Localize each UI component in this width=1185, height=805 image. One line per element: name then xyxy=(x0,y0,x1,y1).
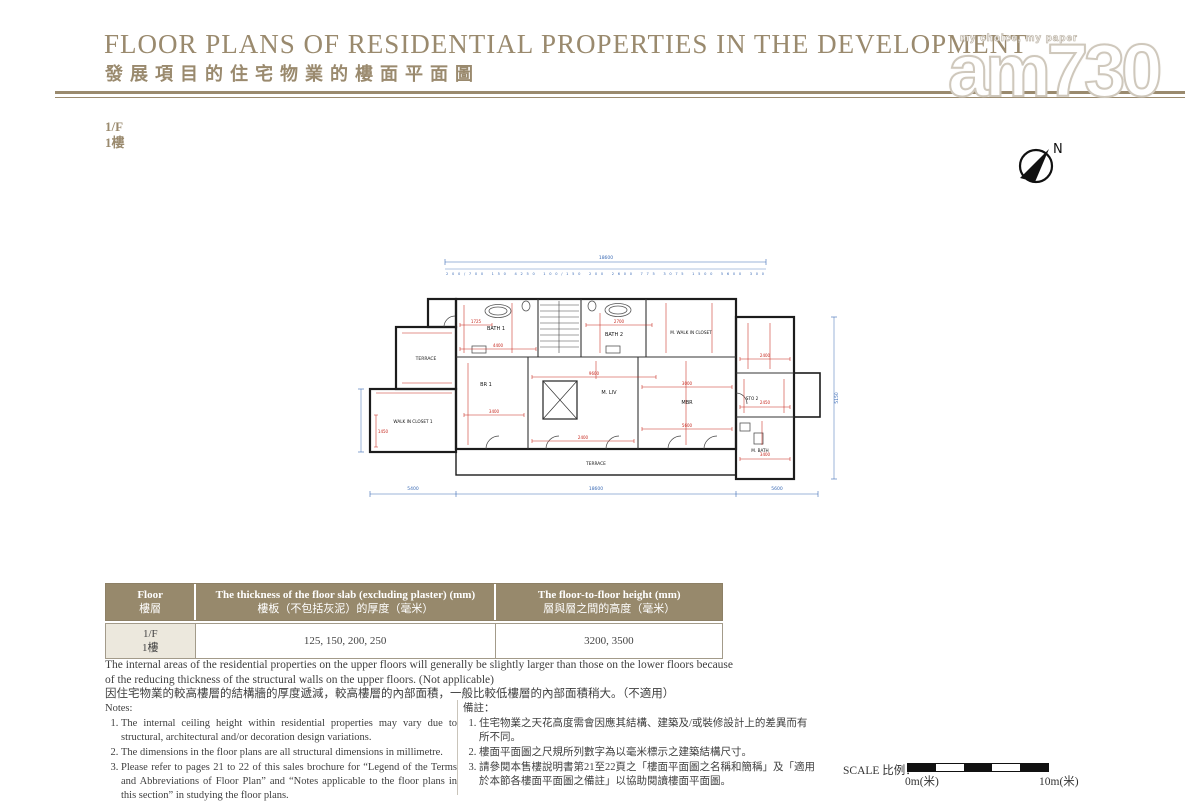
lift-shaft xyxy=(543,381,577,419)
svg-text:2400: 2400 xyxy=(760,353,771,358)
notes-chinese: 備註： 住宅物業之天花高度需會因應其結構、建築及/或裝修設計上的差異而有所不同。… xyxy=(463,702,815,790)
dim-bottom-center: 18600 xyxy=(589,486,603,492)
dim-bottom-right: 5600 xyxy=(771,486,783,492)
room-label-walk-in-closet-1: WALK IN CLOSET 1 xyxy=(393,419,432,424)
floor-label-en: 1/F xyxy=(105,119,125,135)
svg-text:3000: 3000 xyxy=(682,381,693,386)
room-label-mbr: MBR xyxy=(681,400,693,406)
blue-dimension-lines: 18600 200/700 150 4250 100/150 200 2600 … xyxy=(358,255,840,497)
room-label-terrace-left: TERRACE xyxy=(415,356,437,362)
room-label-m-walk-in-closet: M. WALK IN CLOSET xyxy=(670,330,712,335)
floor-plan: 18600 200/700 150 4250 100/150 200 2600 … xyxy=(356,252,848,534)
room-label-br1: BR 1 xyxy=(480,382,492,388)
room-label-m-liv: M. LIV xyxy=(601,390,617,396)
notes-column-divider xyxy=(457,700,458,795)
page-title: FLOOR PLANS OF RESIDENTIAL PROPERTIES IN… xyxy=(104,29,1028,60)
svg-text:2700: 2700 xyxy=(614,319,625,324)
table-cell-floor: 1/F 1樓 xyxy=(105,623,196,659)
internal-area-note: The internal areas of the residential pr… xyxy=(105,658,733,702)
north-label: N xyxy=(1053,142,1063,157)
dim-top-subdivisions: 200/700 150 4250 100/150 200 2600 775 30… xyxy=(446,272,765,276)
am730-logo: am730 xyxy=(948,34,1158,108)
scale-ten-label: 10m(米) xyxy=(1039,773,1079,789)
svg-text:1725: 1725 xyxy=(471,319,482,324)
scale-zero-label: 0m(米) xyxy=(905,773,939,789)
dim-bottom-left: 5400 xyxy=(407,486,419,492)
staircase xyxy=(540,301,579,353)
table-header-thickness: The thickness of the floor slab (excludi… xyxy=(194,584,494,620)
notes-english: Notes: The internal ceiling height withi… xyxy=(105,702,457,804)
notes-title-zh: 備註： xyxy=(463,702,815,716)
table-row: 1/F 1樓 125, 150, 200, 250 3200, 3500 xyxy=(105,623,723,659)
note-zh-2: 樓面平面圖之尺規所列數字為以毫米標示之建築結構尺寸。 xyxy=(479,746,815,760)
room-label-terrace-bottom: TERRACE xyxy=(585,461,606,467)
room-label-bath2: BATH 2 xyxy=(605,332,623,338)
interior-walls xyxy=(456,299,794,449)
notes-title-en: Notes: xyxy=(105,702,457,716)
svg-text:1450: 1450 xyxy=(378,429,389,434)
dim-top-total: 18600 xyxy=(599,255,613,261)
table-cell-height: 3200, 3500 xyxy=(496,623,723,659)
dim-right-side: 5150 xyxy=(834,392,840,404)
am730-watermark: my choice, my paper am730 xyxy=(948,24,1168,114)
room-label-m-bath: M. BATH xyxy=(751,448,768,453)
note-en-3: Please refer to pages 21 to 22 of this s… xyxy=(121,761,457,803)
scale-bar-graphic xyxy=(907,763,1049,772)
svg-text:5600: 5600 xyxy=(682,423,693,428)
note-en-1: The internal ceiling height within resid… xyxy=(121,717,457,745)
internal-area-note-zh: 因住宅物業的較高樓層的結構牆的厚度遞減，較高樓層的內部面積，一般比較低樓層的內部… xyxy=(105,687,733,702)
page-title-chinese: 發展項目的住宅物業的樓面平面圖 xyxy=(105,60,480,86)
room-label-bath1: BATH 1 xyxy=(487,326,505,332)
floor-label-zh: 1樓 xyxy=(105,135,125,151)
north-arrow-icon: N xyxy=(1012,136,1068,192)
table-header-row: Floor 樓層 The thickness of the floor slab… xyxy=(105,583,723,621)
svg-text:2450: 2450 xyxy=(760,400,771,405)
note-en-2: The dimensions in the floor plans are al… xyxy=(121,746,457,760)
floor-label: 1/F 1樓 xyxy=(105,119,125,151)
internal-area-note-en: The internal areas of the residential pr… xyxy=(105,658,733,687)
svg-text:9600: 9600 xyxy=(589,371,600,376)
brochure-page: FLOOR PLANS OF RESIDENTIAL PROPERTIES IN… xyxy=(0,0,1185,805)
table-cell-thickness: 125, 150, 200, 250 xyxy=(196,623,496,659)
svg-text:3400: 3400 xyxy=(489,409,500,414)
note-zh-3: 請參閱本售樓說明書第21至22頁之「樓面平面圖之名稱和簡稱」及「適用於本節各樓面… xyxy=(479,761,815,789)
note-zh-1: 住宅物業之天花高度需會因應其結構、建築及/或裝修設計上的差異而有所不同。 xyxy=(479,717,815,745)
floor-slab-table: Floor 樓層 The thickness of the floor slab… xyxy=(105,583,723,659)
room-label-sto2: STO 2 xyxy=(746,396,759,401)
table-header-height: The floor-to-floor height (mm) 層與層之間的高度（… xyxy=(494,584,722,620)
table-header-floor: Floor 樓層 xyxy=(106,584,194,620)
svg-text:2400: 2400 xyxy=(578,435,589,440)
svg-text:4400: 4400 xyxy=(493,343,504,348)
